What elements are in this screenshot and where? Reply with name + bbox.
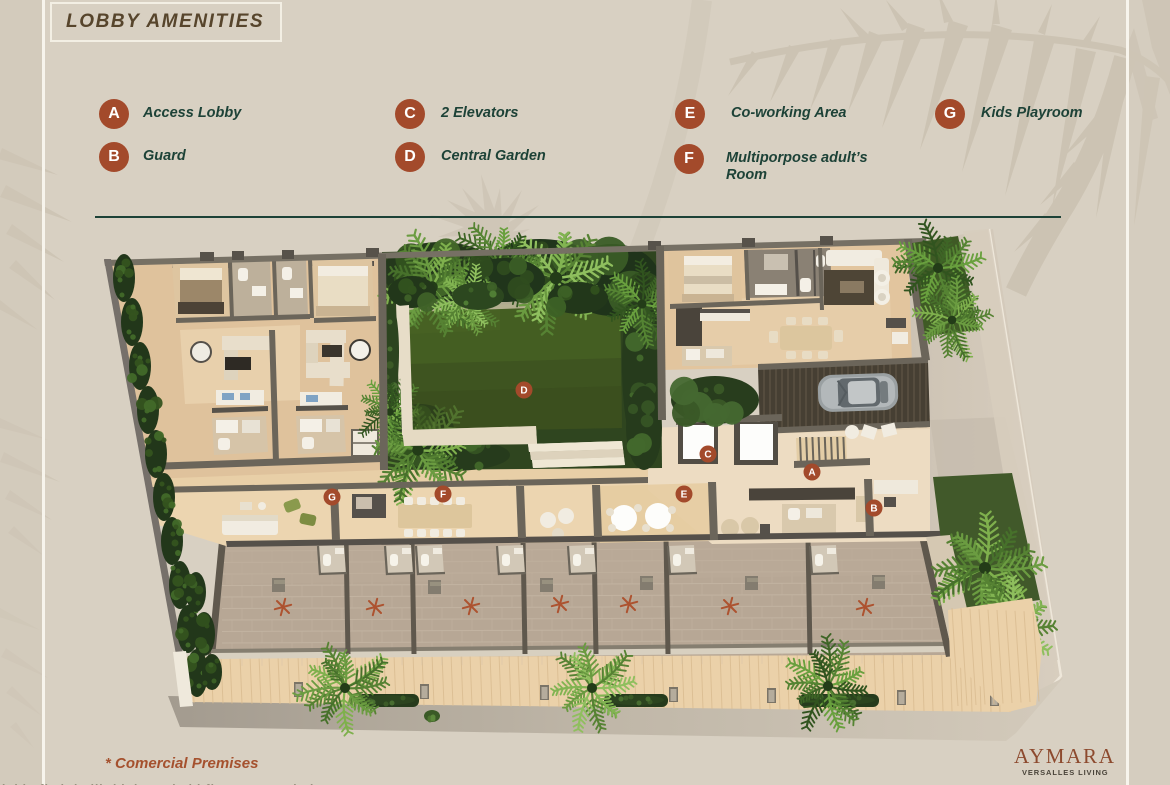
svg-text:G: G: [328, 493, 336, 504]
svg-text:F: F: [440, 490, 446, 501]
svg-text:E: E: [681, 490, 688, 501]
svg-text:A: A: [808, 468, 815, 479]
svg-text:B: B: [870, 504, 877, 515]
svg-text:D: D: [520, 386, 527, 397]
svg-text:C: C: [704, 450, 711, 461]
